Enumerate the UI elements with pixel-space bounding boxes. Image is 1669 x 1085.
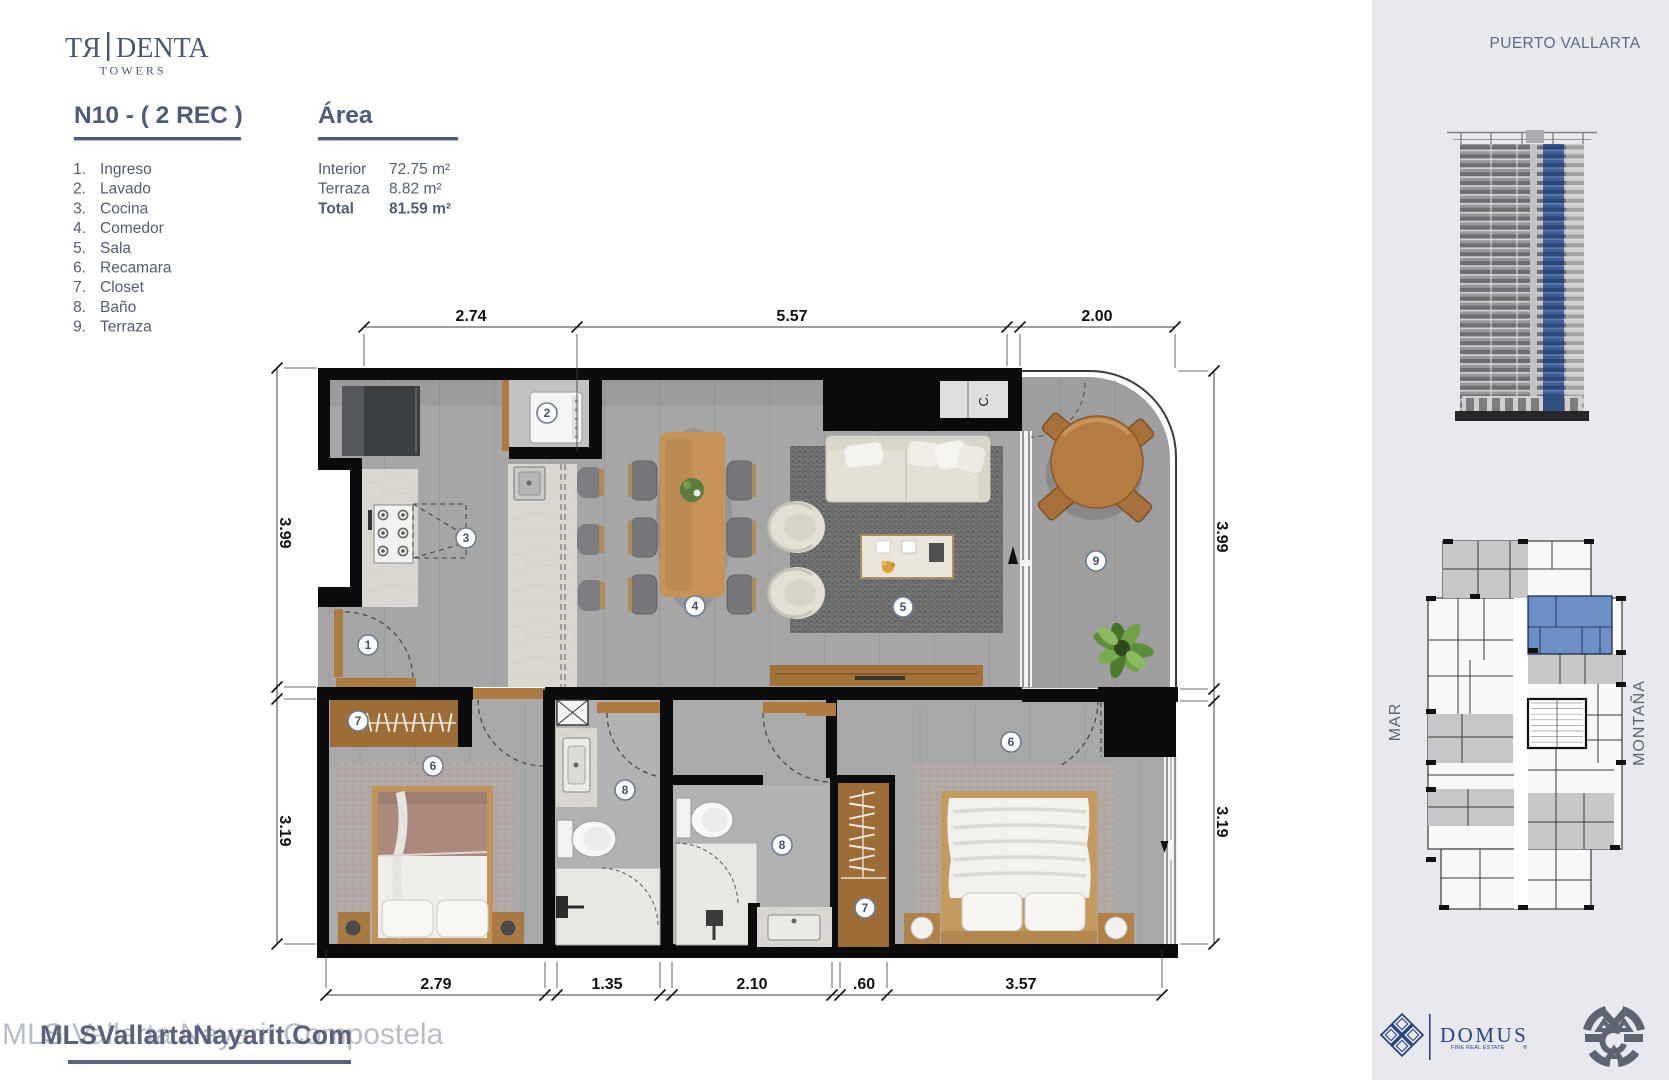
svg-text:8: 8: [622, 783, 629, 797]
svg-text:5.57: 5.57: [776, 308, 807, 325]
svg-text:7.: 7.: [73, 279, 86, 296]
svg-text:9.: 9.: [73, 319, 86, 336]
svg-text:8.82 m²: 8.82 m²: [389, 181, 442, 198]
svg-text:1.: 1.: [73, 161, 86, 178]
svg-text:6.: 6.: [73, 260, 86, 277]
svg-text:7: 7: [355, 714, 362, 728]
svg-text:MONTAÑA: MONTAÑA: [1628, 680, 1648, 766]
svg-text:C.: C.: [976, 394, 991, 407]
svg-text:DOMUS: DOMUS: [1440, 1023, 1528, 1047]
svg-text:5.: 5.: [73, 240, 86, 257]
svg-text:Interior: Interior: [318, 161, 366, 178]
svg-text:2.: 2.: [73, 181, 86, 198]
svg-text:1.35: 1.35: [591, 976, 622, 993]
svg-text:2.10: 2.10: [736, 976, 767, 993]
svg-text:8.: 8.: [73, 299, 86, 316]
svg-text:3.: 3.: [73, 200, 86, 217]
svg-text:72.75 m²: 72.75 m²: [389, 161, 450, 178]
svg-text:TЯ: TЯ: [65, 33, 101, 64]
svg-text:Recamara: Recamara: [100, 260, 172, 277]
svg-text:MLSVallartaNayarit.Com: MLSVallartaNayarit.Com: [40, 1020, 352, 1050]
svg-text:6: 6: [430, 759, 437, 773]
svg-text:3.57: 3.57: [1005, 976, 1036, 993]
svg-text:2.79: 2.79: [420, 976, 451, 993]
svg-text:4.: 4.: [73, 220, 86, 237]
svg-text:.60: .60: [853, 976, 875, 993]
svg-text:Terraza: Terraza: [100, 319, 152, 336]
svg-text:3.19: 3.19: [276, 815, 293, 846]
svg-text:FINE REAL ESTATE: FINE REAL ESTATE: [1451, 1045, 1505, 1051]
svg-text:3.99: 3.99: [276, 517, 293, 548]
svg-text:Lavado: Lavado: [100, 181, 151, 198]
svg-text:MAR: MAR: [1387, 703, 1404, 742]
svg-text:Total: Total: [318, 200, 354, 217]
svg-text:Ingreso: Ingreso: [100, 161, 152, 178]
svg-text:Terraza: Terraza: [318, 181, 370, 198]
svg-text:N10 - ( 2 REC ): N10 - ( 2 REC ): [74, 102, 243, 129]
svg-text:Comedor: Comedor: [100, 220, 164, 237]
svg-text:7: 7: [862, 901, 869, 915]
svg-text:5: 5: [900, 600, 907, 614]
svg-text:3: 3: [463, 531, 470, 545]
svg-text:DENTA: DENTA: [116, 33, 209, 64]
svg-text:Closet: Closet: [100, 279, 145, 296]
svg-text:9: 9: [1093, 554, 1100, 568]
svg-text:®: ®: [1523, 1044, 1527, 1051]
svg-text:Baño: Baño: [100, 299, 136, 316]
svg-text:2.74: 2.74: [455, 308, 486, 325]
svg-text:2: 2: [544, 406, 551, 420]
svg-text:Área: Área: [318, 101, 373, 129]
svg-text:PUERTO VALLARTA: PUERTO VALLARTA: [1489, 35, 1640, 52]
svg-text:4: 4: [692, 599, 699, 613]
svg-text:TOWERS: TOWERS: [99, 64, 166, 78]
svg-text:1: 1: [365, 638, 372, 652]
svg-text:6: 6: [1008, 735, 1015, 749]
svg-text:Cocina: Cocina: [100, 200, 149, 217]
svg-text:8: 8: [779, 838, 786, 852]
svg-text:Sala: Sala: [100, 240, 131, 257]
svg-text:81.59 m²: 81.59 m²: [389, 200, 451, 217]
svg-text:3.99: 3.99: [1213, 521, 1230, 552]
svg-text:3.19: 3.19: [1213, 806, 1230, 837]
svg-text:2.00: 2.00: [1081, 308, 1112, 325]
